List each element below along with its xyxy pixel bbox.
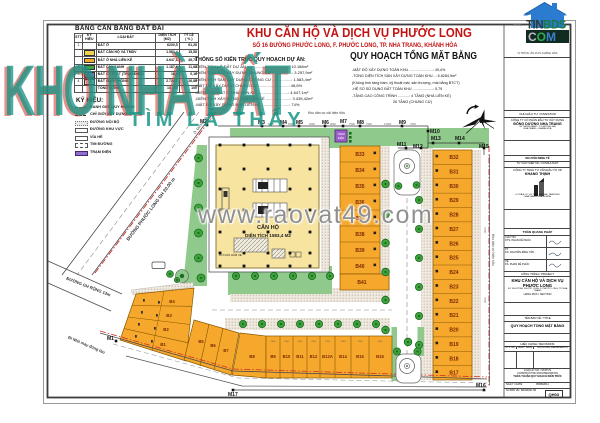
svg-text:B35: B35 [355, 184, 364, 190]
svg-text:B24: B24 [449, 270, 458, 276]
svg-text:B22: B22 [449, 299, 458, 305]
svg-text:M15: M15 [479, 144, 489, 150]
svg-text:www.: www. [513, 23, 522, 27]
svg-text:B25: B25 [449, 256, 458, 262]
svg-text:B19: B19 [449, 342, 458, 348]
svg-text:7500: 7500 [325, 341, 331, 343]
svg-text:M13: M13 [431, 136, 441, 142]
svg-text:7500: 7500 [298, 341, 304, 343]
svg-text:B21: B21 [449, 313, 458, 319]
svg-text:7500: 7500 [378, 341, 384, 343]
svg-text:B3: B3 [166, 313, 172, 318]
svg-text:7500: 7500 [311, 341, 317, 343]
svg-text:M7: M7 [340, 119, 347, 125]
svg-text:B26: B26 [449, 241, 458, 247]
svg-text:M1: M1 [107, 336, 114, 342]
svg-text:7500: 7500 [341, 341, 347, 343]
svg-text:7500: 7500 [284, 341, 290, 343]
svg-text:B6: B6 [210, 343, 216, 348]
svg-text:7500: 7500 [358, 341, 364, 343]
svg-text:9000: 9000 [330, 122, 336, 126]
svg-text:7500: 7500 [483, 297, 487, 303]
svg-text:B40: B40 [355, 264, 364, 270]
svg-text:B12: B12 [310, 354, 318, 359]
svg-text:B14: B14 [339, 354, 347, 359]
svg-text:B23: B23 [449, 284, 458, 290]
svg-text:B7: B7 [223, 348, 229, 353]
svg-text:B15: B15 [356, 354, 364, 359]
svg-text:B28: B28 [449, 213, 458, 219]
svg-text:B5: B5 [198, 339, 204, 344]
svg-text:B30: B30 [449, 184, 458, 190]
svg-text:COM: COM [528, 30, 556, 44]
svg-text:B27: B27 [449, 227, 458, 233]
svg-text:B38: B38 [355, 232, 364, 238]
svg-text:TRẠM: TRẠM [337, 132, 344, 136]
svg-text:14000: 14000 [384, 122, 392, 126]
svg-text:M8: M8 [357, 120, 364, 126]
svg-text:B4: B4 [169, 299, 175, 304]
svg-text:ĐƯỜNG PHƯỚC LONG GH 20.00 m: ĐƯỜNG PHƯỚC LONG GH 20.00 m [124, 175, 176, 241]
svg-text:7500: 7500 [410, 122, 416, 126]
svg-text:B31: B31 [449, 169, 458, 175]
svg-text:B33: B33 [355, 152, 364, 158]
svg-text:B1: B1 [160, 342, 166, 347]
svg-text:7500: 7500 [366, 122, 372, 126]
svg-text:B18: B18 [449, 356, 458, 362]
svg-text:B41: B41 [357, 280, 366, 286]
svg-text:B12A: B12A [322, 354, 333, 359]
svg-text:LỐI VÀO HẦM XE: LỐI VÀO HẦM XE [219, 252, 242, 257]
svg-text:B39: B39 [355, 248, 364, 254]
svg-text:B9: B9 [270, 354, 276, 359]
svg-text:B20: B20 [449, 328, 458, 334]
svg-text:B2: B2 [163, 327, 169, 332]
svg-text:7500: 7500 [483, 227, 487, 233]
svg-text:B8: B8 [249, 354, 255, 359]
svg-text:B16: B16 [376, 354, 384, 359]
svg-text:7500: 7500 [349, 122, 355, 126]
svg-text:M12: M12 [413, 144, 423, 150]
svg-text:Khu dân cư hiện hữu: Khu dân cư hiện hữu [491, 234, 495, 266]
svg-text:M14: M14 [455, 136, 465, 142]
svg-text:M11: M11 [397, 142, 407, 148]
svg-text:B34: B34 [355, 168, 364, 174]
svg-text:M10: M10 [430, 129, 440, 135]
svg-text:M6: M6 [322, 120, 329, 126]
svg-text:B29: B29 [449, 198, 458, 204]
svg-text:M16: M16 [476, 383, 486, 389]
svg-text:M9: M9 [399, 120, 406, 126]
svg-text:DIỆN TÍCH 1583,4 M2: DIỆN TÍCH 1583,4 M2 [245, 231, 291, 238]
svg-text:B11: B11 [296, 354, 304, 359]
svg-text:7500: 7500 [271, 341, 277, 343]
svg-text:B10: B10 [283, 354, 291, 359]
svg-text:4500: 4500 [309, 122, 315, 126]
svg-text:Khu dân cư cải hiện hữu: Khu dân cư cải hiện hữu [308, 111, 345, 115]
svg-text:Đi Nhà máy đóng tàu: Đi Nhà máy đóng tàu [67, 335, 106, 355]
svg-text:M17: M17 [228, 392, 238, 398]
svg-text:B32: B32 [449, 155, 458, 161]
